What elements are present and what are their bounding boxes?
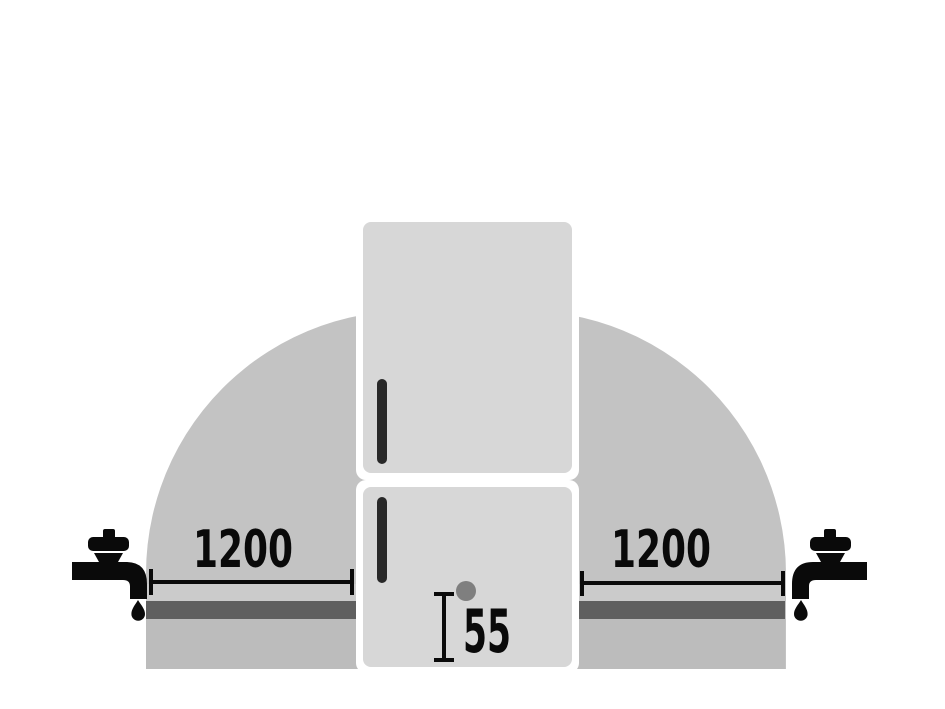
upper-door-handle-icon [377,379,387,464]
installation-diagram: 1200 1200 55 [0,0,945,709]
lower-door-handle-icon [377,497,387,583]
diagram-canvas: 1200 1200 55 [0,0,945,709]
inlet-height-label: 55 [463,597,511,667]
right-dimension-label: 1200 [611,520,711,580]
left-dimension-label: 1200 [193,520,293,580]
fridge-upper-door [363,222,572,473]
